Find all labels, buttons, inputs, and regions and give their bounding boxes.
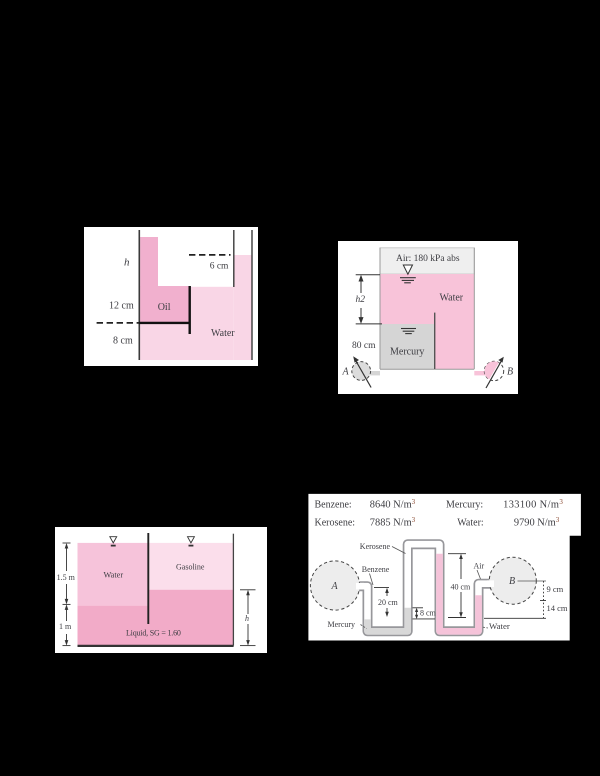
svg-text:Mercury: Mercury bbox=[390, 346, 424, 357]
svg-text:6 cm: 6 cm bbox=[210, 261, 229, 271]
svg-text:133100 N/m3: 133100 N/m3 bbox=[503, 498, 563, 511]
svg-text:8640 N/m3: 8640 N/m3 bbox=[370, 498, 416, 511]
svg-text:9790 N/m3: 9790 N/m3 bbox=[514, 516, 560, 529]
svg-text:40 cm: 40 cm bbox=[451, 583, 472, 592]
svg-text:12 cm: 12 cm bbox=[109, 301, 134, 312]
svg-text:1 m: 1 m bbox=[59, 622, 72, 631]
svg-text:Air: Air bbox=[474, 562, 485, 571]
svg-text:Liquid, SG = 1.60: Liquid, SG = 1.60 bbox=[126, 629, 181, 638]
svg-text:Water:: Water: bbox=[457, 518, 483, 529]
svg-text:Gasoline: Gasoline bbox=[176, 563, 205, 572]
svg-text:8 cm: 8 cm bbox=[420, 609, 437, 618]
svg-text:B: B bbox=[507, 366, 513, 377]
svg-text:A: A bbox=[331, 581, 339, 592]
svg-text:1.5 m: 1.5 m bbox=[57, 573, 76, 582]
svg-text:Mercury:: Mercury: bbox=[446, 500, 483, 511]
svg-text:Water: Water bbox=[211, 328, 235, 339]
svg-text:Oil: Oil bbox=[158, 302, 171, 313]
svg-text:9 cm: 9 cm bbox=[547, 584, 564, 594]
svg-text:Water: Water bbox=[104, 571, 124, 580]
svg-text:Benzene: Benzene bbox=[362, 565, 390, 574]
svg-text:Kerosene:: Kerosene: bbox=[315, 518, 356, 529]
svg-text:h: h bbox=[124, 257, 130, 269]
svg-text:A: A bbox=[342, 367, 350, 378]
svg-text:20 cm: 20 cm bbox=[378, 598, 399, 607]
svg-text:14 cm: 14 cm bbox=[547, 603, 568, 613]
svg-text:Water: Water bbox=[489, 621, 510, 631]
svg-text:Mercury: Mercury bbox=[328, 620, 356, 629]
svg-text:h2: h2 bbox=[356, 295, 366, 305]
svg-text:Water: Water bbox=[440, 293, 464, 304]
svg-text:B: B bbox=[509, 576, 515, 587]
svg-text:8 cm: 8 cm bbox=[113, 336, 133, 347]
svg-text:80 cm: 80 cm bbox=[352, 341, 376, 351]
svg-text:7885 N/m3: 7885 N/m3 bbox=[370, 516, 416, 529]
svg-text:h: h bbox=[245, 614, 249, 623]
svg-text:Kerosene: Kerosene bbox=[360, 542, 391, 551]
svg-text:Air: 180 kPa abs: Air: 180 kPa abs bbox=[396, 254, 460, 264]
svg-text:Benzene:: Benzene: bbox=[315, 500, 352, 511]
